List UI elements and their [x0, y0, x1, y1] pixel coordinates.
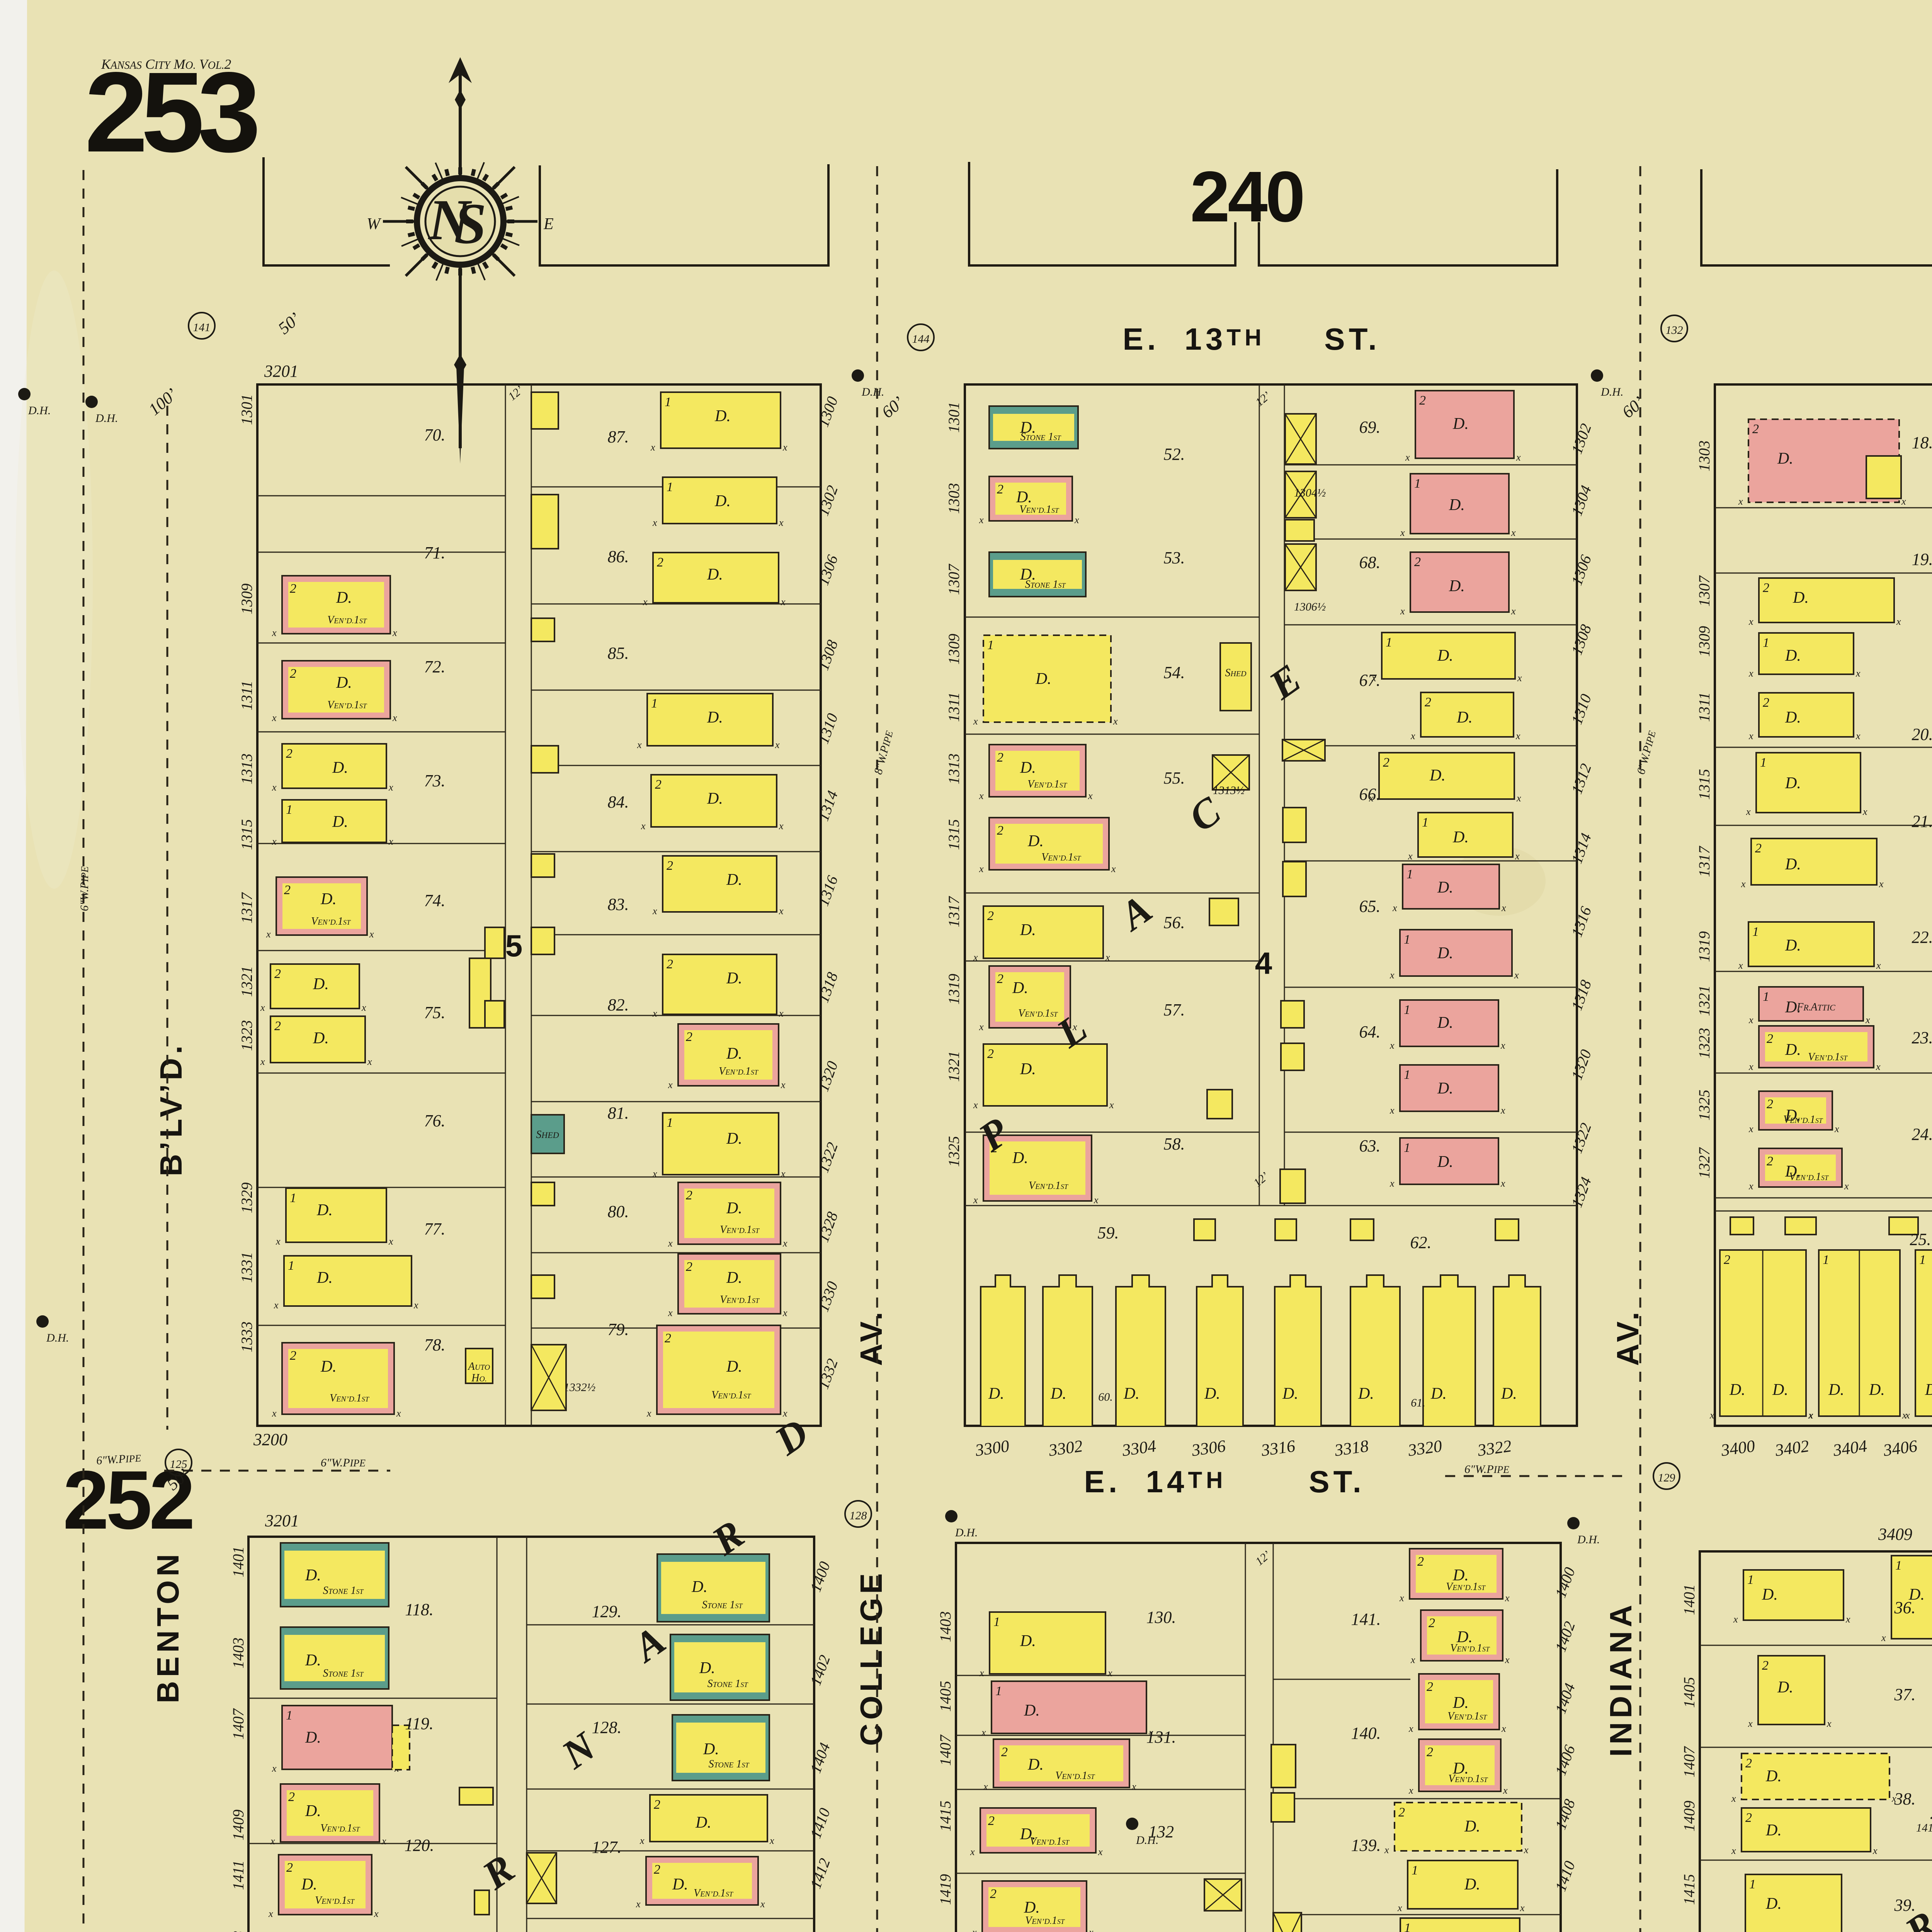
svg-text:64.: 64. [1359, 1022, 1381, 1041]
svg-text:SHED: SHED [536, 1129, 559, 1141]
svg-text:x: x [643, 596, 648, 607]
svg-text:x: x [1500, 1178, 1505, 1189]
svg-text:2: 2 [667, 859, 673, 873]
svg-text:x: x [1515, 730, 1520, 742]
svg-text:1313: 1313 [945, 753, 963, 784]
svg-text:D.: D. [1358, 1385, 1374, 1403]
svg-text:1313: 1313 [238, 753, 255, 784]
svg-text:D.: D. [714, 407, 731, 425]
svg-text:x: x [782, 1307, 787, 1318]
svg-text:D.: D. [1012, 979, 1028, 997]
svg-text:253: 253 [85, 48, 258, 176]
svg-text:1: 1 [667, 480, 673, 494]
svg-text:x: x [1074, 514, 1079, 526]
svg-text:D.: D. [1501, 1385, 1517, 1403]
svg-text:D.: D. [1765, 1895, 1782, 1913]
svg-text:87.: 87. [608, 427, 629, 446]
svg-text:x: x [1748, 1123, 1753, 1134]
svg-text:2: 2 [286, 1861, 293, 1875]
svg-text:73.: 73. [424, 771, 446, 790]
svg-text:2: 2 [657, 555, 663, 570]
svg-text:x: x [1738, 960, 1743, 971]
svg-text:2: 2 [665, 1331, 671, 1345]
svg-text:D.: D. [332, 813, 348, 831]
svg-text:D.: D. [1785, 998, 1801, 1016]
svg-text:1: 1 [1747, 1573, 1754, 1587]
svg-text:81.: 81. [608, 1104, 629, 1122]
svg-text:2: 2 [1383, 755, 1389, 770]
svg-text:x: x [1855, 730, 1861, 742]
svg-text:x: x [1905, 1410, 1910, 1421]
svg-text:x: x [769, 1835, 774, 1846]
svg-text:1: 1 [1763, 990, 1769, 1004]
svg-text:x: x [1738, 496, 1743, 507]
svg-text:1327: 1327 [1696, 1147, 1713, 1179]
svg-text:D.: D. [726, 1045, 742, 1063]
svg-text:1: 1 [288, 1259, 294, 1273]
svg-text:140.: 140. [1351, 1724, 1381, 1743]
svg-text:2: 2 [1417, 1554, 1424, 1569]
svg-text:1405: 1405 [937, 1681, 954, 1712]
svg-text:1415: 1415 [937, 1801, 954, 1832]
svg-text:x: x [979, 790, 984, 801]
svg-text:3409: 3409 [1878, 1525, 1912, 1544]
svg-text:1321: 1321 [1696, 985, 1713, 1016]
svg-text:85.: 85. [608, 644, 629, 663]
svg-text:x: x [979, 863, 984, 874]
svg-text:1409: 1409 [230, 1810, 247, 1840]
svg-text:129: 129 [1658, 1471, 1675, 1484]
svg-text:D.H.: D.H. [1577, 1533, 1600, 1546]
svg-text:65.: 65. [1359, 897, 1381, 916]
svg-text:1: 1 [1422, 815, 1429, 830]
svg-text:x: x [1500, 1105, 1505, 1116]
svg-text:D.H.: D.H. [955, 1526, 978, 1539]
svg-text:23.: 23. [1912, 1028, 1932, 1047]
svg-text:x: x [637, 739, 642, 750]
svg-text:x: x [1879, 878, 1884, 889]
svg-text:D.: D. [1793, 589, 1809, 607]
svg-text:60.: 60. [1098, 1391, 1113, 1403]
svg-text:1: 1 [1404, 1921, 1411, 1932]
svg-text:x: x [1392, 902, 1397, 913]
svg-text:x: x [973, 952, 978, 963]
svg-text:D.: D. [1785, 1041, 1801, 1059]
svg-text:D.: D. [707, 709, 723, 726]
svg-text:2: 2 [1745, 1811, 1752, 1825]
svg-text:x: x [1408, 1785, 1413, 1796]
svg-text:x: x [782, 442, 787, 453]
svg-text:x: x [1516, 793, 1521, 804]
svg-text:x: x [270, 1835, 275, 1847]
svg-text:2: 2 [686, 1260, 692, 1274]
svg-text:240: 240 [1190, 157, 1303, 237]
svg-text:D.: D. [707, 566, 723, 583]
svg-text:D.: D. [1430, 1385, 1447, 1403]
svg-text:x: x [1865, 1014, 1870, 1026]
svg-text:x: x [652, 905, 657, 917]
svg-text:D.: D. [1729, 1381, 1745, 1399]
svg-text:D.: D. [316, 1201, 333, 1219]
svg-text:x: x [636, 1898, 641, 1910]
svg-text:D.: D. [1762, 1586, 1778, 1604]
svg-text:2: 2 [1724, 1253, 1730, 1267]
svg-text:D.: D. [1016, 488, 1032, 506]
svg-text:139.: 139. [1351, 1836, 1381, 1855]
svg-text:x: x [652, 517, 657, 528]
svg-text:2: 2 [286, 747, 293, 761]
svg-text:1407: 1407 [1680, 1746, 1698, 1777]
svg-text:COLLEGE: COLLEGE [854, 1570, 888, 1746]
svg-text:D.: D. [1020, 1825, 1036, 1843]
svg-text:x: x [1088, 1927, 1094, 1932]
svg-text:78.: 78. [424, 1335, 446, 1354]
svg-text:1303: 1303 [1696, 440, 1713, 471]
svg-text:D.: D. [726, 969, 742, 987]
svg-text:x: x [1733, 1614, 1738, 1625]
svg-text:x: x [973, 716, 978, 727]
svg-text:53.: 53. [1164, 548, 1185, 567]
svg-text:2: 2 [686, 1030, 692, 1044]
svg-text:x: x [781, 596, 786, 607]
svg-text:1403: 1403 [937, 1611, 954, 1642]
svg-text:1315: 1315 [238, 819, 255, 850]
svg-text:2: 2 [667, 957, 673, 971]
svg-text:1301: 1301 [945, 402, 963, 433]
svg-text:D.: D. [1437, 647, 1453, 665]
svg-text:x: x [779, 1008, 784, 1019]
svg-text:6″W.PIPE: 6″W.PIPE [321, 1456, 366, 1469]
svg-text:x: x [1731, 1845, 1736, 1856]
svg-text:1315: 1315 [1696, 769, 1713, 800]
svg-text:x: x [1088, 790, 1093, 801]
svg-text:D.: D. [1437, 1014, 1453, 1032]
svg-text:x: x [272, 627, 277, 638]
svg-text:x: x [1399, 1592, 1404, 1604]
svg-text:1409: 1409 [1680, 1801, 1698, 1832]
svg-text:2: 2 [997, 823, 1003, 838]
svg-text:130.: 130. [1146, 1608, 1176, 1627]
svg-text:D.: D. [1012, 1149, 1028, 1167]
svg-text:D.H.: D.H. [28, 404, 51, 417]
svg-text:x: x [1827, 1718, 1832, 1729]
svg-text:x: x [1872, 1845, 1878, 1856]
svg-text:80.: 80. [608, 1202, 629, 1221]
svg-text:1309: 1309 [1696, 626, 1713, 657]
svg-text:1401: 1401 [230, 1546, 247, 1577]
svg-text:x: x [1524, 1844, 1529, 1855]
svg-text:D.: D. [336, 589, 352, 607]
svg-text:x: x [1516, 452, 1521, 463]
svg-text:x: x [1517, 672, 1522, 684]
svg-text:D.: D. [336, 674, 352, 692]
svg-text:25.: 25. [1910, 1230, 1931, 1249]
svg-text:2: 2 [1427, 1680, 1433, 1694]
svg-text:D.: D. [1020, 419, 1036, 437]
svg-text:D.: D. [699, 1659, 715, 1677]
svg-text:1415: 1415 [1680, 1874, 1698, 1905]
svg-text:1309: 1309 [238, 583, 255, 614]
svg-text:D.: D. [316, 1269, 333, 1287]
svg-text:1: 1 [1895, 1558, 1902, 1573]
svg-text:D.: D. [1828, 1381, 1844, 1399]
svg-text:D.: D. [1464, 1818, 1480, 1835]
svg-text:2: 2 [1427, 1745, 1433, 1759]
svg-text:D.: D. [1024, 1702, 1040, 1719]
svg-text:127.: 127. [592, 1838, 622, 1857]
svg-text:1303: 1303 [945, 483, 963, 514]
svg-text:3201: 3201 [264, 362, 298, 381]
svg-text:2: 2 [654, 1798, 660, 1812]
svg-text:1307: 1307 [945, 563, 963, 595]
svg-text:D.: D. [305, 1802, 321, 1820]
svg-text:D.: D. [1785, 937, 1801, 954]
svg-text:x: x [1896, 616, 1901, 627]
svg-text:141: 141 [193, 321, 211, 334]
svg-text:D.: D. [1464, 1876, 1480, 1893]
svg-text:D.: D. [1437, 1153, 1453, 1171]
svg-text:74.: 74. [424, 891, 446, 910]
svg-text:1323: 1323 [1696, 1028, 1713, 1059]
svg-text:1: 1 [286, 1708, 293, 1723]
svg-text:D.: D. [726, 871, 742, 889]
svg-text:1332½: 1332½ [564, 1381, 596, 1394]
svg-text:x: x [1408, 850, 1413, 862]
svg-text:6″W.PIPE: 6″W.PIPE [1464, 1463, 1509, 1476]
svg-text:x: x [779, 517, 784, 528]
svg-text:x: x [1515, 850, 1520, 862]
svg-text:D.: D. [1050, 1385, 1066, 1403]
svg-text:x: x [1098, 1846, 1103, 1857]
svg-text:x: x [388, 782, 393, 793]
svg-text:84.: 84. [608, 793, 629, 811]
svg-text:52.: 52. [1164, 445, 1185, 464]
svg-text:2: 2 [1763, 696, 1769, 710]
svg-text:1: 1 [1749, 1877, 1756, 1891]
svg-text:D.H.: D.H. [861, 386, 884, 398]
svg-text:x: x [1746, 806, 1751, 817]
svg-text:D.H.: D.H. [95, 412, 118, 425]
svg-text:D.: D. [1785, 647, 1801, 665]
svg-text:x: x [1400, 605, 1405, 617]
svg-text:144: 144 [912, 333, 930, 345]
svg-text:x: x [973, 1194, 978, 1206]
svg-text:1315: 1315 [945, 819, 963, 850]
svg-text:1: 1 [1404, 1141, 1410, 1155]
svg-text:D.: D. [1772, 1381, 1788, 1399]
svg-text:D.: D. [1024, 1899, 1040, 1917]
svg-text:1: 1 [1752, 925, 1759, 939]
svg-text:x: x [1748, 1180, 1753, 1192]
svg-text:21.: 21. [1912, 812, 1932, 831]
svg-text:x: x [1731, 1793, 1736, 1804]
svg-text:132: 132 [1148, 1822, 1174, 1841]
svg-text:x: x [981, 1727, 986, 1738]
svg-text:1317: 1317 [945, 896, 963, 927]
svg-text:D.: D. [1020, 921, 1036, 939]
svg-text:38.: 38. [1894, 1789, 1916, 1808]
svg-text:1: 1 [651, 696, 658, 711]
svg-text:D.: D. [695, 1814, 711, 1832]
svg-text:2: 2 [655, 777, 662, 792]
svg-text:x: x [272, 712, 277, 723]
svg-text:1325: 1325 [1696, 1090, 1713, 1121]
svg-text:71.: 71. [424, 543, 446, 562]
svg-text:129.: 129. [592, 1602, 622, 1621]
svg-text:1407: 1407 [937, 1734, 954, 1766]
svg-text:D.: D. [1452, 828, 1469, 846]
svg-text:22.: 22. [1912, 928, 1932, 947]
svg-text:2: 2 [1752, 422, 1759, 436]
svg-text:1313½: 1313½ [1213, 784, 1245, 797]
svg-text:24.: 24. [1912, 1125, 1932, 1144]
svg-text:x: x [1109, 1099, 1114, 1111]
svg-text:x: x [367, 1056, 372, 1067]
svg-text:66.: 66. [1359, 785, 1381, 804]
svg-text:D.: D. [1437, 879, 1453, 896]
svg-text:1319: 1319 [945, 974, 963, 1005]
svg-text:128: 128 [850, 1509, 867, 1522]
svg-text:x: x [1808, 1410, 1813, 1421]
svg-text:D.: D. [726, 1358, 742, 1376]
svg-text:D.: D. [1020, 759, 1036, 777]
svg-text:x: x [1405, 452, 1410, 463]
svg-text:FR.ATTIC: FR.ATTIC [1796, 1001, 1835, 1013]
svg-text:x: x [1748, 668, 1753, 679]
svg-text:77.: 77. [424, 1219, 446, 1238]
svg-text:2: 2 [290, 582, 296, 596]
svg-text:D.: D. [1449, 577, 1465, 595]
svg-text:D.: D. [1777, 1679, 1793, 1696]
svg-text:1: 1 [1412, 1863, 1418, 1878]
svg-text:x: x [1505, 1654, 1510, 1665]
svg-text:1333: 1333 [238, 1321, 255, 1352]
svg-text:D.: D. [1925, 1381, 1932, 1399]
svg-text:D.: D. [320, 890, 337, 908]
svg-text:x: x [1876, 1061, 1881, 1072]
svg-text:D.: D. [1429, 767, 1446, 784]
svg-text:1: 1 [286, 803, 293, 817]
svg-text:56.: 56. [1164, 913, 1185, 932]
svg-text:2: 2 [1001, 1745, 1008, 1759]
svg-text:2: 2 [1755, 841, 1762, 855]
svg-text:2: 2 [1767, 1097, 1773, 1111]
svg-text:1: 1 [995, 1684, 1002, 1698]
svg-text:x: x [1397, 1902, 1402, 1913]
svg-text:x: x [1741, 878, 1746, 889]
svg-text:D.: D. [332, 759, 348, 777]
svg-text:x: x [1520, 1902, 1525, 1913]
svg-text:x: x [973, 1099, 978, 1111]
svg-text:2: 2 [987, 1047, 994, 1061]
svg-text:x: x [775, 739, 780, 750]
svg-text:2: 2 [1767, 1032, 1773, 1046]
svg-text:67.: 67. [1359, 671, 1381, 690]
svg-text:2: 2 [1762, 1658, 1769, 1673]
svg-text:D.: D. [313, 975, 329, 993]
svg-text:69.: 69. [1359, 418, 1381, 437]
svg-text:D.: D. [714, 492, 731, 510]
svg-text:61.: 61. [1411, 1396, 1425, 1409]
svg-text:D.: D. [305, 1729, 321, 1747]
svg-text:1307: 1307 [1696, 575, 1713, 607]
svg-text:1317: 1317 [1696, 845, 1713, 877]
svg-text:1405: 1405 [1680, 1677, 1698, 1708]
svg-text:x: x [1505, 1592, 1510, 1604]
svg-text:x: x [272, 1408, 277, 1419]
svg-text:x: x [392, 627, 397, 638]
svg-text:x: x [1113, 716, 1118, 727]
svg-text:x: x [1389, 969, 1395, 981]
svg-text:1403: 1403 [230, 1638, 247, 1668]
svg-text:INDIANA: INDIANA [1604, 1601, 1638, 1757]
svg-text:86.: 86. [608, 547, 629, 566]
svg-text:57.: 57. [1164, 1000, 1185, 1019]
svg-text:79.: 79. [608, 1320, 629, 1339]
svg-text:1: 1 [665, 395, 671, 409]
svg-text:D.: D. [1204, 1385, 1220, 1403]
svg-text:D.: D. [1449, 496, 1465, 514]
svg-text:W: W [367, 215, 382, 233]
svg-text:1: 1 [1406, 867, 1413, 881]
svg-text:119.: 119. [405, 1714, 434, 1733]
svg-text:x: x [1107, 1667, 1112, 1679]
svg-text:2: 2 [274, 967, 281, 981]
svg-text:2: 2 [1419, 393, 1426, 408]
svg-text:1329: 1329 [238, 1182, 255, 1213]
svg-text:x: x [1748, 730, 1753, 742]
svg-text:D.: D. [726, 1130, 742, 1148]
svg-text:x: x [668, 1307, 673, 1318]
svg-text:2: 2 [1414, 555, 1421, 569]
svg-text:x: x [1408, 1723, 1413, 1734]
svg-text:2: 2 [1767, 1154, 1773, 1168]
svg-text:S: S [454, 192, 486, 256]
svg-text:x: x [413, 1299, 418, 1311]
svg-text:1: 1 [1404, 1068, 1410, 1082]
svg-text:2: 2 [654, 1862, 660, 1877]
svg-text:D.: D. [1027, 1756, 1044, 1774]
svg-text:x: x [396, 1408, 401, 1419]
svg-text:x: x [1855, 668, 1861, 679]
svg-text:x: x [1514, 969, 1519, 981]
svg-text:x: x [1511, 605, 1516, 617]
svg-text:x: x [1389, 1040, 1395, 1051]
svg-text:D.: D. [1282, 1385, 1298, 1403]
svg-text:x: x [1862, 806, 1867, 817]
svg-text:2: 2 [686, 1188, 692, 1202]
svg-text:1: 1 [290, 1191, 296, 1205]
svg-text:D.: D. [1437, 944, 1453, 962]
svg-text:B’LV’D.: B’LV’D. [154, 1042, 188, 1177]
svg-text:x: x [1384, 1844, 1389, 1855]
svg-text:D.: D. [313, 1029, 329, 1047]
svg-text:1311: 1311 [1696, 692, 1713, 722]
svg-text:x: x [274, 1299, 279, 1311]
svg-text:x: x [381, 1835, 386, 1847]
svg-text:x: x [779, 905, 784, 917]
svg-text:x: x [1410, 1654, 1415, 1665]
svg-text:D.: D. [1785, 709, 1801, 726]
svg-text:82.: 82. [608, 995, 629, 1014]
svg-text:2: 2 [290, 1349, 296, 1363]
svg-text:1323: 1323 [238, 1020, 255, 1051]
svg-text:D.: D. [1035, 670, 1051, 688]
svg-text:x: x [266, 929, 271, 940]
svg-text:128.: 128. [592, 1718, 622, 1737]
svg-text:2: 2 [1425, 695, 1431, 709]
svg-text:x: x [1845, 1614, 1850, 1625]
